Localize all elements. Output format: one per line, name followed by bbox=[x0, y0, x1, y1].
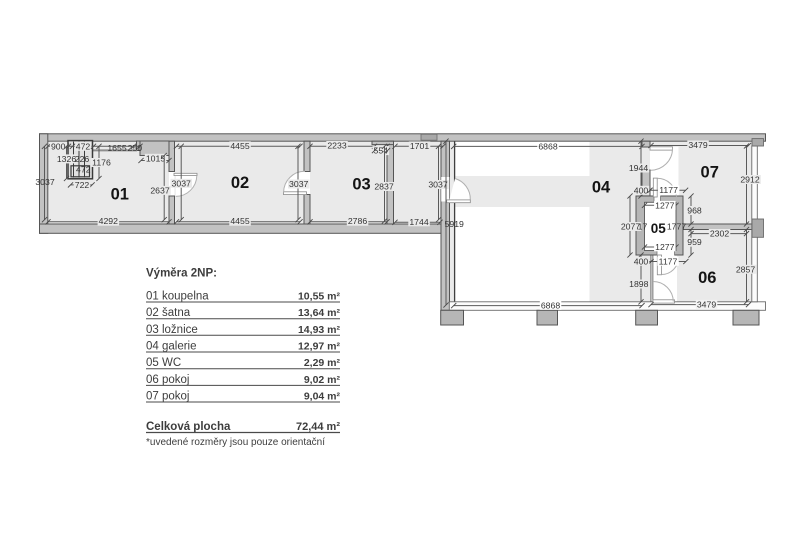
svg-text:2637: 2637 bbox=[150, 185, 169, 195]
svg-text:3037: 3037 bbox=[428, 180, 447, 190]
svg-text:2837: 2837 bbox=[374, 182, 393, 192]
svg-text:2,29 m²: 2,29 m² bbox=[304, 357, 341, 369]
svg-text:226: 226 bbox=[75, 154, 90, 164]
svg-text:01: 01 bbox=[111, 185, 129, 203]
svg-text:6868: 6868 bbox=[541, 300, 560, 310]
svg-text:17: 17 bbox=[638, 222, 648, 232]
svg-text:959: 959 bbox=[687, 237, 702, 247]
svg-text:472: 472 bbox=[76, 141, 91, 151]
svg-text:06: 06 bbox=[698, 269, 716, 287]
svg-text:Výměra 2NP:: Výměra 2NP: bbox=[146, 267, 217, 279]
svg-text:02: 02 bbox=[231, 174, 249, 192]
svg-text:*uvedené rozměry jsou pouze or: *uvedené rozměry jsou pouze orientační bbox=[146, 437, 325, 448]
svg-text:13,64 m²: 13,64 m² bbox=[298, 307, 341, 319]
svg-text:968: 968 bbox=[687, 206, 702, 216]
svg-text:1326: 1326 bbox=[57, 154, 76, 164]
svg-text:1744: 1744 bbox=[409, 217, 428, 227]
svg-text:3479: 3479 bbox=[697, 299, 716, 309]
svg-text:03: 03 bbox=[352, 176, 370, 194]
svg-text:722: 722 bbox=[75, 180, 90, 190]
svg-text:1898: 1898 bbox=[629, 279, 648, 289]
svg-text:12,97 m²: 12,97 m² bbox=[298, 341, 341, 353]
svg-text:1015: 1015 bbox=[146, 153, 165, 163]
svg-text:1944: 1944 bbox=[629, 163, 648, 173]
svg-text:4455: 4455 bbox=[230, 141, 249, 151]
svg-text:05 WC: 05 WC bbox=[146, 357, 181, 369]
svg-text:2857: 2857 bbox=[736, 264, 755, 274]
svg-text:1277: 1277 bbox=[655, 200, 674, 210]
svg-text:3037: 3037 bbox=[35, 177, 54, 187]
svg-text:4292: 4292 bbox=[99, 216, 118, 226]
svg-text:02 šatna: 02 šatna bbox=[146, 307, 191, 319]
svg-text:03 ložnice: 03 ložnice bbox=[146, 324, 198, 336]
svg-text:1277: 1277 bbox=[655, 242, 674, 252]
svg-text:900: 900 bbox=[51, 141, 66, 151]
svg-text:72,44 m²: 72,44 m² bbox=[296, 421, 340, 433]
svg-text:07: 07 bbox=[701, 164, 719, 182]
svg-text:04: 04 bbox=[592, 179, 611, 197]
svg-text:6868: 6868 bbox=[538, 141, 557, 151]
svg-text:5919: 5919 bbox=[445, 219, 464, 229]
svg-text:2302: 2302 bbox=[710, 229, 729, 239]
svg-text:1655: 1655 bbox=[107, 143, 126, 153]
svg-text:3037: 3037 bbox=[289, 179, 308, 189]
svg-text:2912: 2912 bbox=[740, 175, 759, 185]
svg-text:05: 05 bbox=[651, 221, 667, 236]
svg-text:1177: 1177 bbox=[659, 185, 678, 195]
svg-text:400: 400 bbox=[634, 185, 649, 195]
svg-text:9,02 m²: 9,02 m² bbox=[304, 374, 341, 386]
svg-text:400: 400 bbox=[634, 256, 649, 266]
svg-text:Celková plocha: Celková plocha bbox=[146, 421, 231, 433]
svg-text:06 pokoj: 06 pokoj bbox=[146, 374, 189, 386]
svg-text:1701: 1701 bbox=[410, 141, 429, 151]
svg-text:01 koupelna: 01 koupelna bbox=[146, 291, 209, 303]
svg-text:9,04 m²: 9,04 m² bbox=[304, 391, 341, 403]
svg-text:1777: 1777 bbox=[667, 222, 686, 232]
svg-text:3479: 3479 bbox=[688, 140, 707, 150]
svg-text:472: 472 bbox=[76, 165, 91, 175]
svg-text:3037: 3037 bbox=[172, 178, 191, 188]
svg-text:554: 554 bbox=[374, 146, 389, 156]
svg-text:14,93 m²: 14,93 m² bbox=[298, 324, 341, 336]
svg-text:1177: 1177 bbox=[659, 256, 678, 266]
svg-text:04 galerie: 04 galerie bbox=[146, 341, 197, 353]
svg-text:10,55 m²: 10,55 m² bbox=[298, 291, 341, 303]
svg-text:2233: 2233 bbox=[327, 141, 346, 151]
svg-text:1176: 1176 bbox=[92, 158, 111, 168]
svg-text:2786: 2786 bbox=[348, 216, 367, 226]
svg-text:07 pokoj: 07 pokoj bbox=[146, 391, 189, 403]
svg-text:4455: 4455 bbox=[230, 216, 249, 226]
